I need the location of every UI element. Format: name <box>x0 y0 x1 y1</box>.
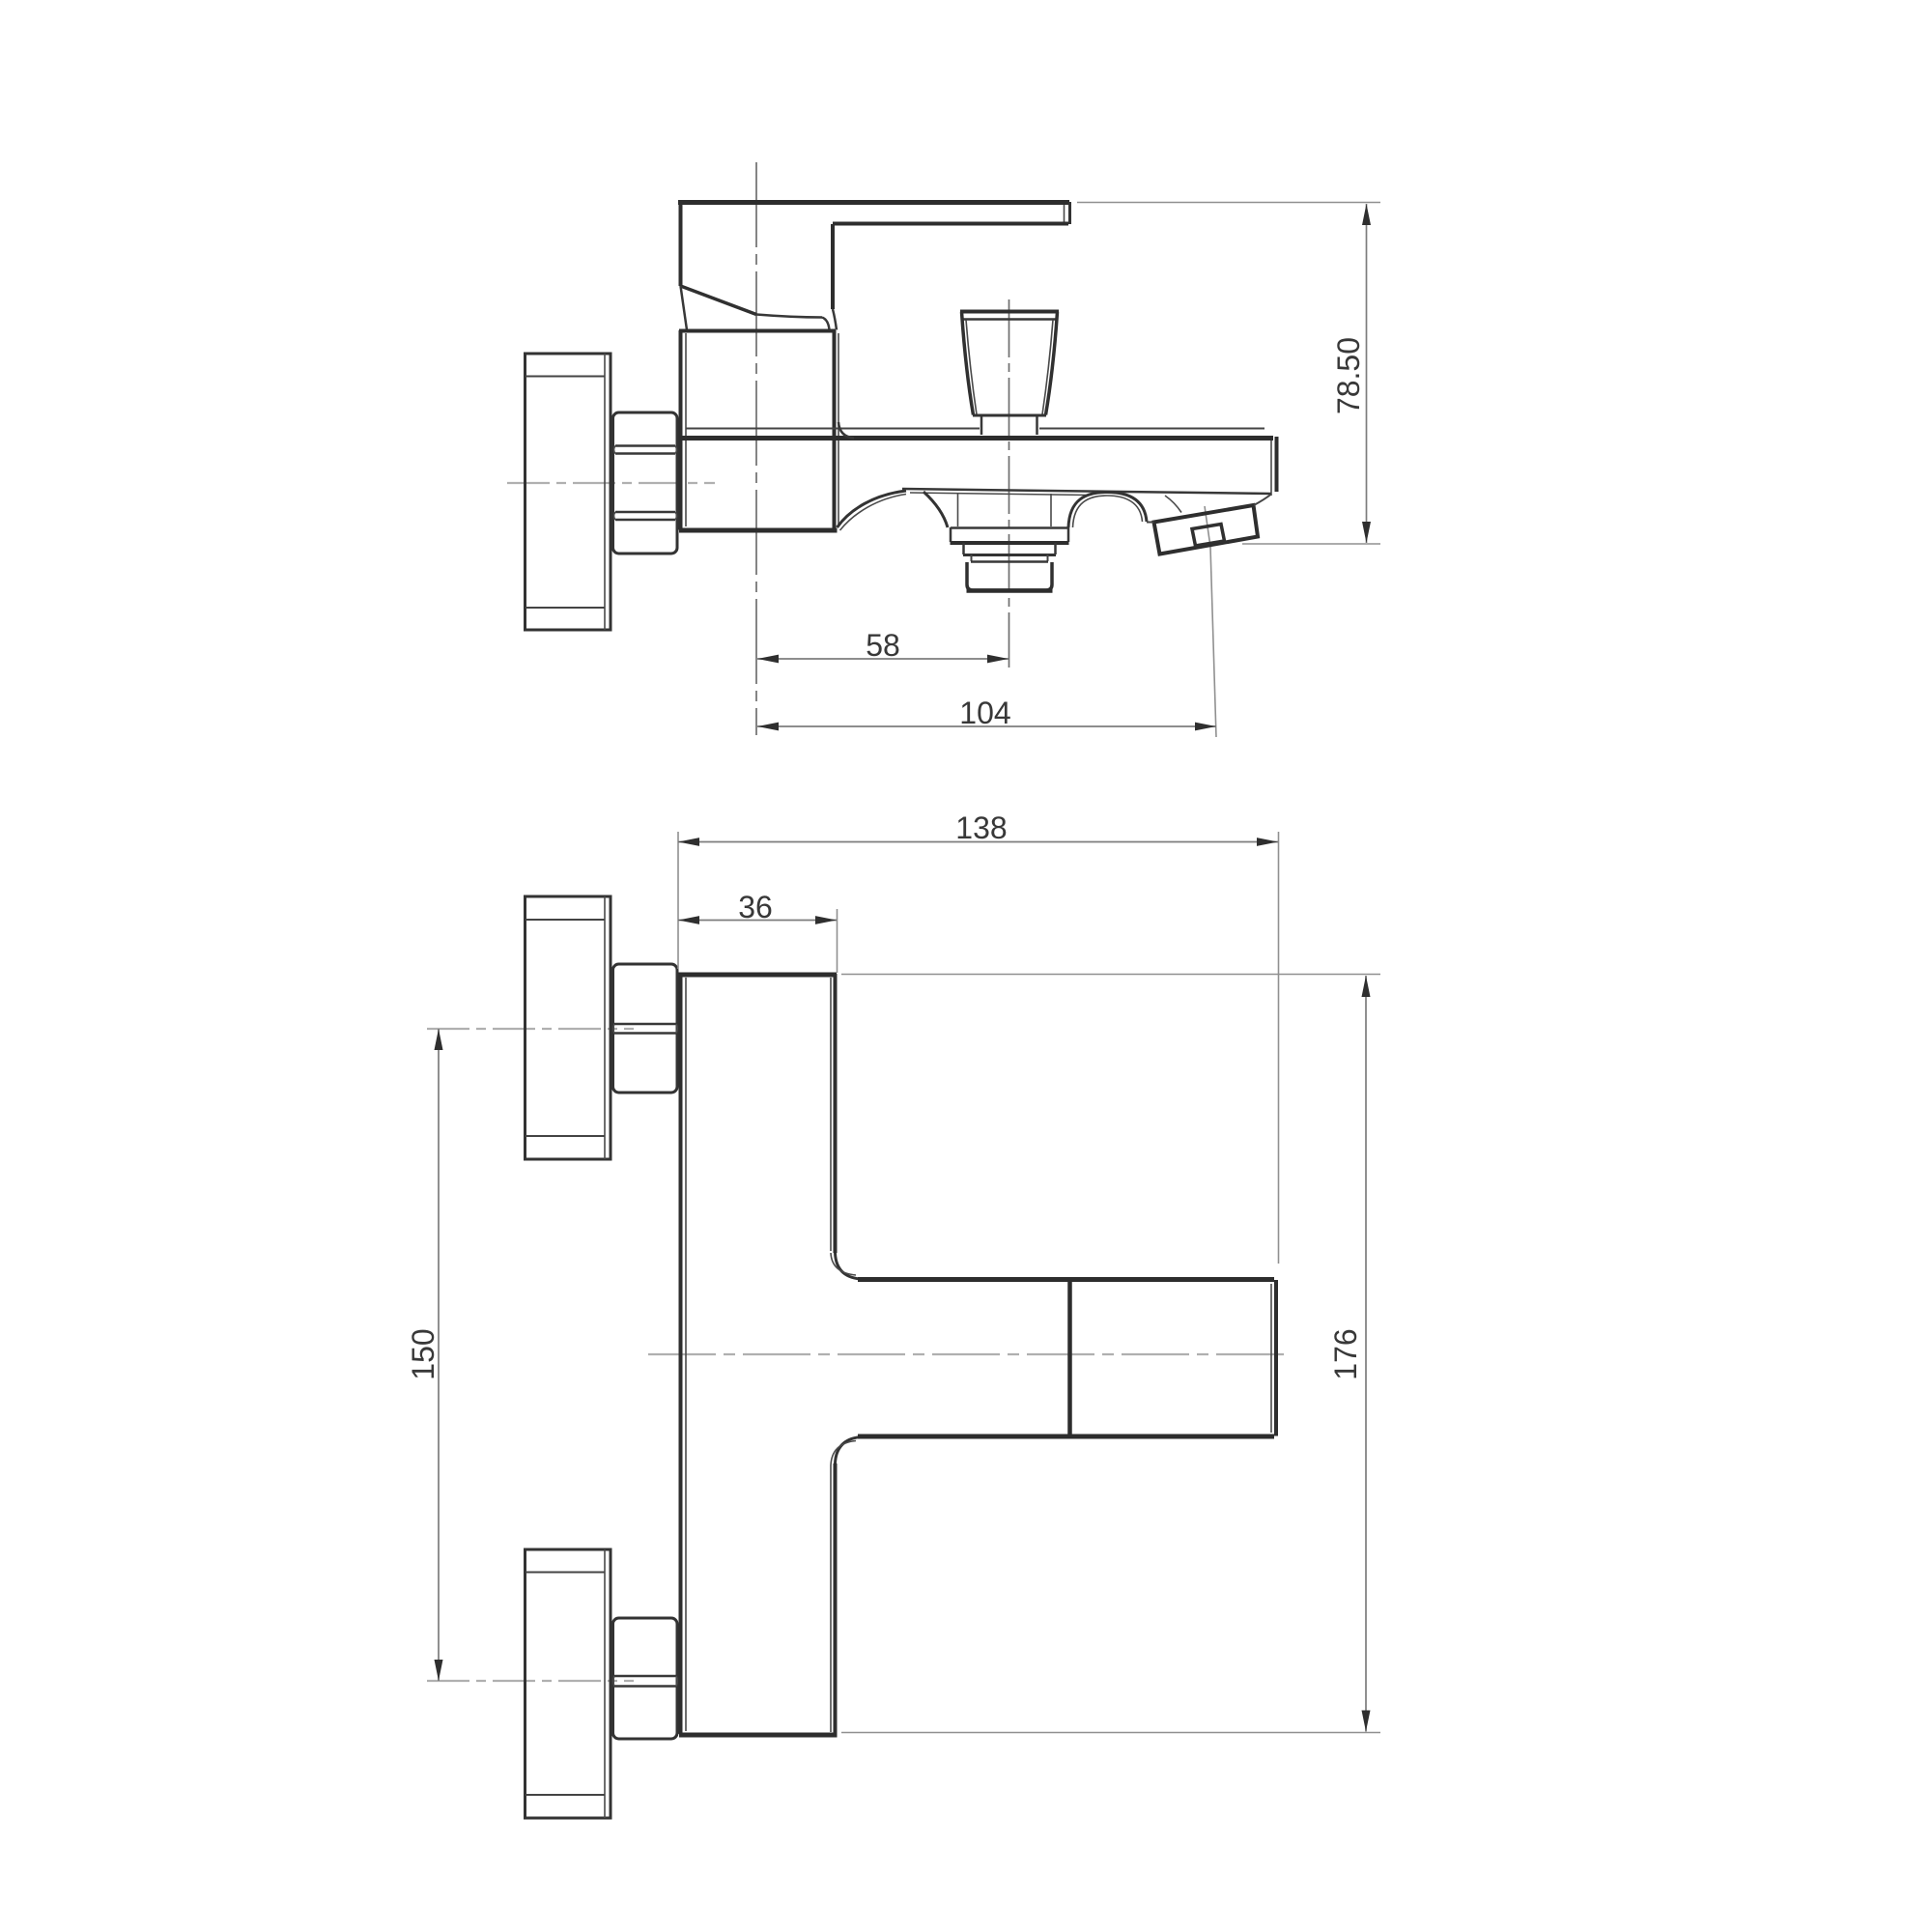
svg-text:36: 36 <box>738 890 773 924</box>
svg-text:58: 58 <box>866 628 900 663</box>
svg-text:78.50: 78.50 <box>1331 337 1366 414</box>
svg-text:104: 104 <box>959 696 1010 730</box>
svg-text:138: 138 <box>955 810 1007 845</box>
svg-text:176: 176 <box>1328 1328 1363 1379</box>
svg-text:150: 150 <box>406 1328 440 1379</box>
